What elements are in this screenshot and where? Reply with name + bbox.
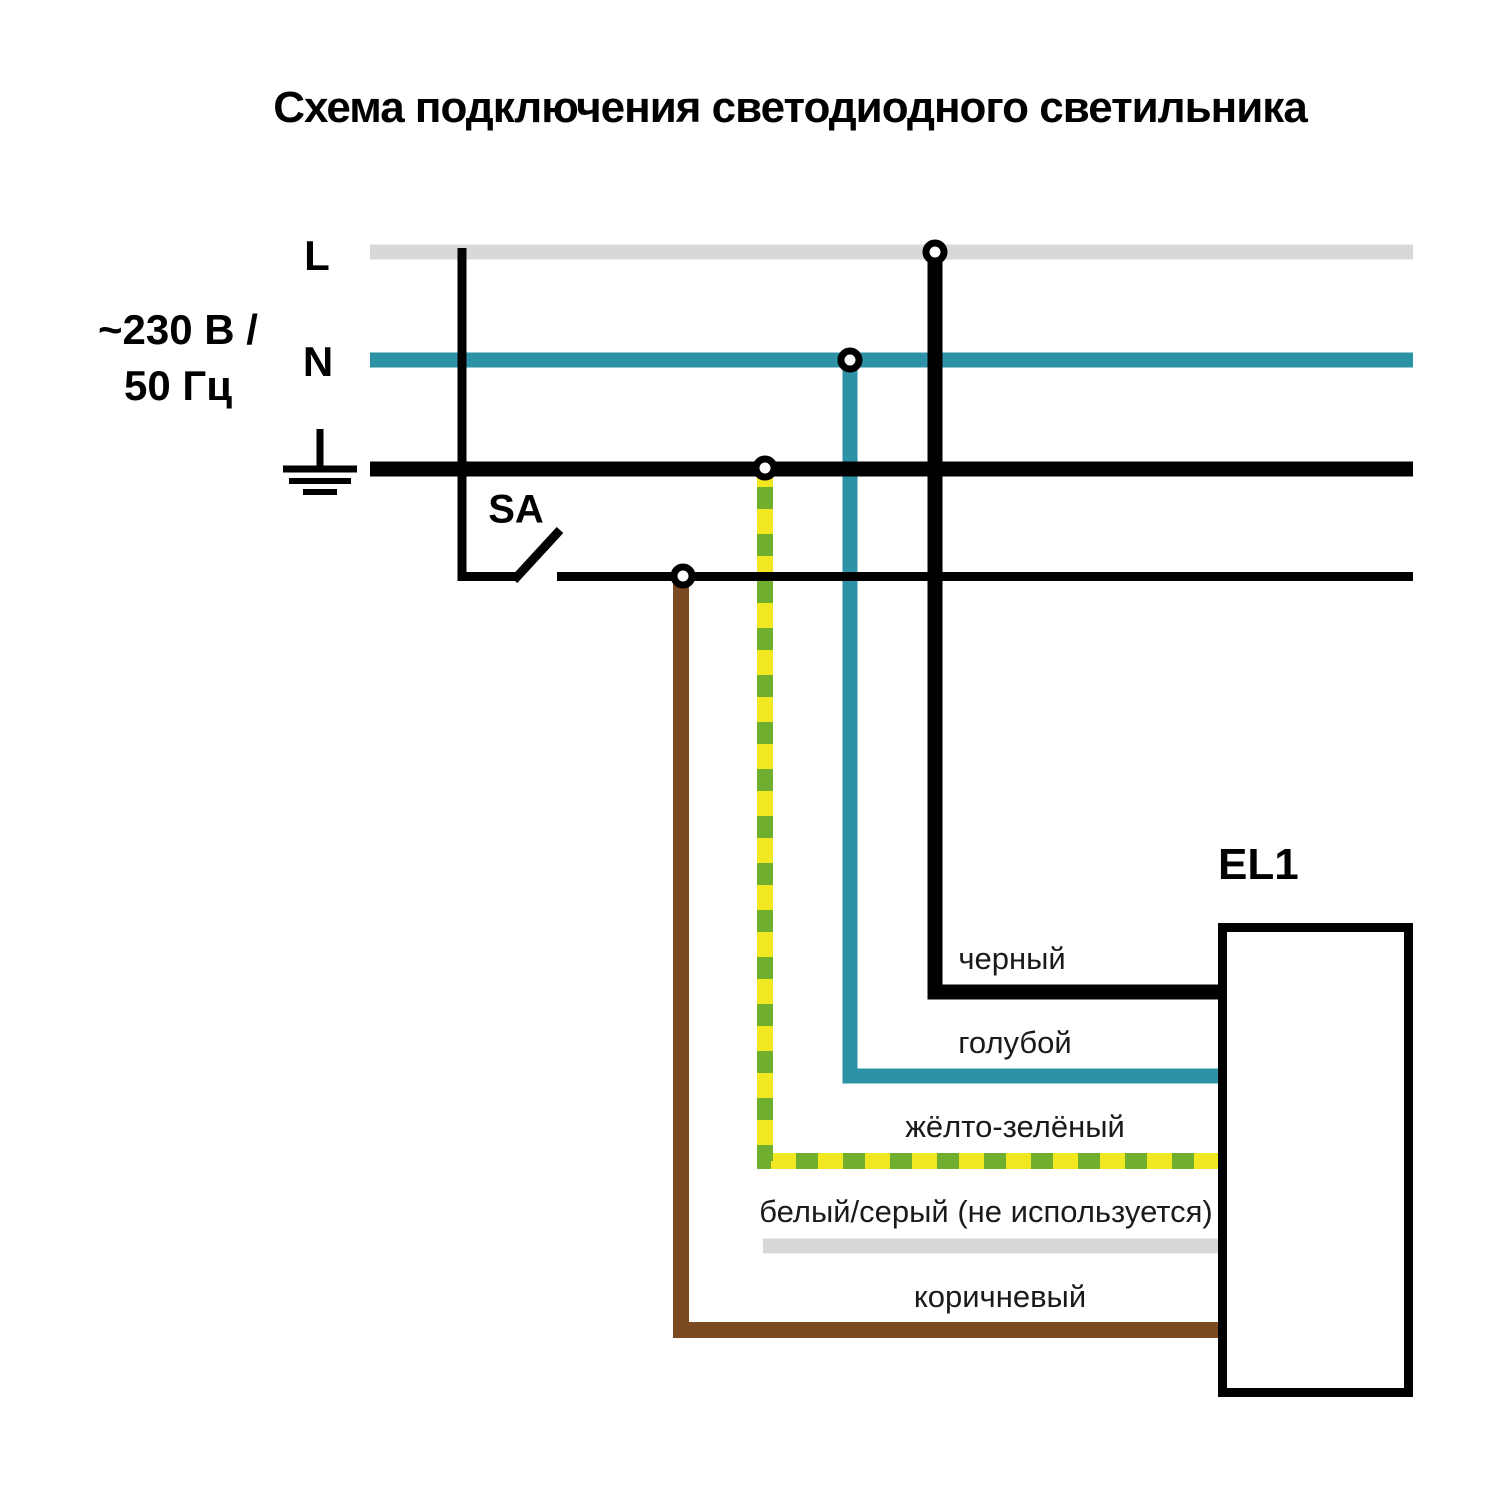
wire-label-white-gray: белый/серый (не используется) bbox=[759, 1194, 1213, 1230]
label-phase-l: L bbox=[304, 232, 330, 280]
luminaire-box bbox=[1223, 928, 1409, 1393]
wire-label-black: черный bbox=[958, 941, 1065, 977]
junction-dot-l bbox=[926, 243, 944, 261]
label-luminaire-el1: EL1 bbox=[1218, 840, 1299, 890]
diagram-title: Схема подключения светодиодного светильн… bbox=[273, 83, 1307, 133]
wiring-diagram-canvas: Схема подключения светодиодного светильн… bbox=[0, 0, 1500, 1500]
voltage-line-1: ~230 В / bbox=[98, 302, 258, 358]
label-neutral-n: N bbox=[303, 338, 333, 386]
wire-label-yellow-green: жёлто-зелёный bbox=[905, 1109, 1125, 1145]
junction-dot-n bbox=[841, 351, 859, 369]
junction-dot-pe bbox=[756, 459, 774, 477]
switch-blade bbox=[514, 530, 560, 580]
voltage-line-2: 50 Гц bbox=[98, 358, 258, 414]
label-switch-sa: SA bbox=[488, 488, 544, 533]
junction-dots bbox=[674, 243, 944, 585]
earth-ground-icon bbox=[283, 429, 357, 492]
wire-label-blue: голубой bbox=[958, 1025, 1071, 1061]
junction-dot-switched bbox=[674, 567, 692, 585]
wiring-diagram bbox=[0, 0, 1500, 1500]
label-voltage: ~230 В / 50 Гц bbox=[98, 302, 258, 414]
wire-label-brown: коричневый bbox=[914, 1279, 1086, 1315]
